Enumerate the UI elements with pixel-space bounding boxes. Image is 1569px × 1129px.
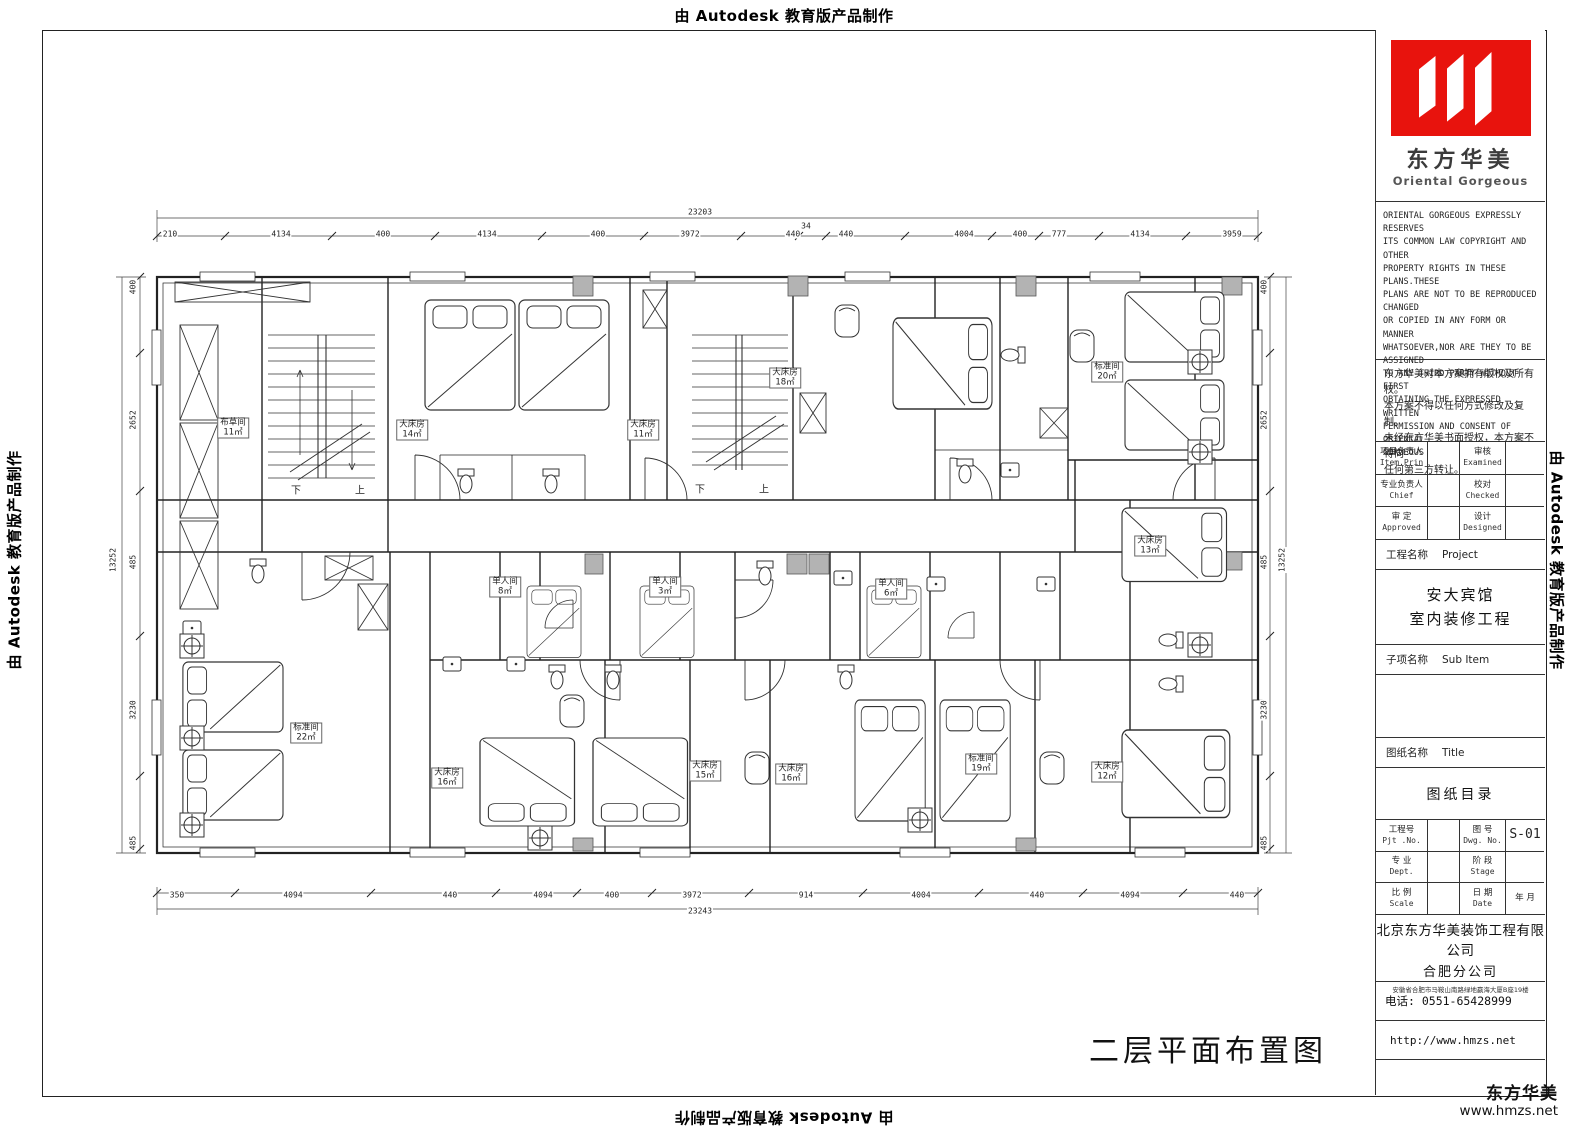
dimension-label: 777 (1051, 230, 1067, 239)
personnel-label: 专业负责人Chief (1376, 475, 1428, 508)
sheet-label-row: 图纸名称 Title (1375, 738, 1545, 768)
dimension-label: 4004 (910, 891, 931, 900)
beds (183, 292, 1230, 826)
dimension-label: 34 (800, 222, 812, 231)
dimension-label: 440 (1029, 891, 1045, 900)
dimension-label: 4134 (1129, 230, 1150, 239)
personnel-value (1506, 475, 1544, 508)
scale-label: 比 例Scale (1376, 883, 1428, 915)
logo-section: 东方华美 Oriental Gorgeous (1375, 30, 1545, 202)
dimension-label: 485 (1260, 554, 1269, 570)
dwg-no-label: 图 号Dwg. No. (1460, 820, 1506, 852)
logo-bar-icon (1475, 52, 1492, 126)
website-row: http://www.hmzs.net (1375, 1021, 1545, 1060)
stair-direction-label: 上 (355, 482, 365, 497)
dimension-label: 440 (785, 230, 801, 239)
project-name-line1: 安大宾馆 (1426, 583, 1494, 607)
dimension-label: 485 (1260, 835, 1269, 851)
info-table: 工程号Pjt .No. 图 号Dwg. No. S-01 专 业Dept. 阶 … (1375, 820, 1545, 915)
logo-company-en: Oriental Gorgeous (1376, 174, 1545, 188)
scale-value (1428, 883, 1460, 915)
dimension-label: 440 (442, 891, 458, 900)
personnel-value (1506, 442, 1544, 475)
dimension-label: 210 (162, 230, 178, 239)
dimension-lines (116, 210, 1292, 915)
dimension-label: 2652 (129, 409, 138, 430)
dept-label: 专 业Dept. (1376, 852, 1428, 884)
dimension-label: 440 (838, 230, 854, 239)
copyright-cn-line: 东方华美对本方案拥有版权及所有权。 (1384, 367, 1537, 399)
phone-row: 电话: 0551-65428999 (1375, 982, 1545, 1021)
dimension-label: 13252 (109, 547, 118, 573)
room-label: 单人间8㎡ (489, 577, 521, 598)
dimension-label: 3230 (129, 699, 138, 720)
dwg-no-value: S-01 (1506, 820, 1544, 852)
stair-direction-label: 下 (695, 481, 705, 496)
personnel-value (1428, 442, 1460, 475)
logo-company-cn: 东方华美 (1376, 142, 1545, 174)
room-label: 大床房13㎡ (1134, 536, 1166, 557)
company-name: 北京东方华美装饰工程有限公司 (1376, 919, 1545, 959)
title-block: 东方华美 Oriental Gorgeous ORIENTAL GORGEOUS… (1375, 30, 1545, 1095)
copyright-en-line: OR COPIED IN ANY FORM OR MANNER (1383, 315, 1538, 341)
company-branch: 合肥分公司 (1376, 961, 1545, 980)
dimension-label: 3959 (1221, 230, 1242, 239)
subitem-label-en: Sub Item (1442, 654, 1489, 666)
copyright-english: ORIENTAL GORGEOUS EXPRESSLY RESERVESITS … (1375, 202, 1545, 360)
project-label-row: 工程名称 Project (1375, 540, 1545, 570)
dimension-label: 23243 (687, 907, 713, 916)
dimension-label: 23203 (687, 208, 713, 217)
stage-label: 阶 段Stage (1460, 852, 1506, 884)
corner-brand-name: 东方华美 (1460, 1086, 1558, 1104)
dimension-label: 4094 (1119, 891, 1140, 900)
project-label-en: Project (1442, 549, 1478, 561)
logo-bar-icon (1447, 54, 1464, 122)
project-name: 安大宾馆 室内装修工程 (1375, 570, 1545, 645)
stair-direction-label: 上 (759, 481, 769, 496)
dimension-label: 400 (1012, 230, 1028, 239)
personnel-label: 设计Designed (1460, 507, 1506, 540)
room-label: 大床房18㎡ (769, 368, 801, 389)
room-label: 大床房11㎡ (627, 420, 659, 441)
dimension-label: 485 (129, 554, 138, 570)
dept-value (1428, 852, 1460, 884)
dimension-label: 4134 (270, 230, 291, 239)
dimension-label: 3230 (1260, 699, 1269, 720)
dimension-label: 400 (604, 891, 620, 900)
pjt-no-value (1428, 820, 1460, 852)
dimension-label: 400 (1260, 279, 1269, 295)
room-label: 大床房14㎡ (396, 420, 428, 441)
sheet-title: 图纸目录 (1375, 768, 1545, 820)
sheet-label: 图纸名称 (1386, 745, 1428, 760)
oriental-gorgeous-logo-mark (1391, 40, 1531, 136)
stair-direction-label: 下 (291, 482, 301, 497)
drawing-title: 二层平面布置图 (1089, 1026, 1327, 1070)
dimension-label: 400 (375, 230, 391, 239)
dimension-label: 350 (169, 891, 185, 900)
project-name-line2: 室内装修工程 (1409, 607, 1511, 631)
dimension-label: 3972 (681, 891, 702, 900)
date-label: 日 期Date (1460, 883, 1506, 915)
personnel-label: 校对Checked (1460, 475, 1506, 508)
floor-plan-drawing (0, 0, 1569, 1124)
dimension-label: 400 (590, 230, 606, 239)
personnel-value (1506, 507, 1544, 540)
dimension-label: 914 (798, 891, 814, 900)
company-section: 北京东方华美装饰工程有限公司 合肥分公司 安徽省合肥市马鞍山南路绿地赢海大厦B座… (1375, 915, 1545, 982)
sheet-label-en: Title (1442, 747, 1465, 759)
dimension-label: 4004 (953, 230, 974, 239)
room-label: 标准间19㎡ (965, 754, 997, 775)
copyright-en-line: PLANS ARE NOT TO BE REPRODUCED CHANGED (1383, 289, 1538, 315)
dimension-label: 400 (129, 279, 138, 295)
pjt-no-label: 工程号Pjt .No. (1376, 820, 1428, 852)
room-label: 布草间11㎡ (217, 418, 249, 439)
room-label: 大床房12㎡ (1091, 762, 1123, 783)
project-label: 工程名称 (1386, 547, 1428, 562)
copyright-en-line: ITS COMMON LAW COPYRIGHT AND OTHER (1383, 236, 1538, 262)
dimension-label: 485 (129, 835, 138, 851)
room-label: 标准间20㎡ (1091, 362, 1123, 383)
copyright-cn-line: 本方案不得以任何方式修改及复制。 (1384, 399, 1537, 431)
room-label: 大床房15㎡ (689, 761, 721, 782)
stage-value (1506, 852, 1544, 884)
room-label: 单人间3㎡ (649, 577, 681, 598)
personnel-label: 项目负责人Item.Prin (1376, 442, 1428, 475)
room-label: 单人间6㎡ (875, 579, 907, 600)
dimension-label: 13252 (1278, 547, 1287, 573)
personnel-value (1428, 507, 1460, 540)
personnel-label: 审核Examined (1460, 442, 1506, 475)
subitem-value-blank (1375, 675, 1545, 738)
personnel-table: 项目负责人Item.Prin审核Examined专业负责人Chief校对Chec… (1375, 442, 1545, 540)
subitem-label: 子项名称 (1386, 652, 1428, 667)
dimension-label: 4094 (532, 891, 553, 900)
dimension-label: 440 (1229, 891, 1245, 900)
personnel-value (1428, 475, 1460, 508)
room-label: 大床房16㎡ (431, 768, 463, 789)
drawing-sheet: { "edge_marks": { "text": "由 Autodesk 教育… (0, 0, 1569, 1124)
dimension-label: 3972 (679, 230, 700, 239)
copyright-chinese: 东方华美对本方案拥有版权及所有权。本方案不得以任何方式修改及复制。未经东方华美书… (1375, 360, 1545, 442)
room-label: 标准间22㎡ (290, 723, 322, 744)
copyright-en-line: ORIENTAL GORGEOUS EXPRESSLY RESERVES (1383, 210, 1538, 236)
copyright-en-line: PROPERTY RIGHTS IN THESE PLANS.THESE (1383, 263, 1538, 289)
dimension-label: 4134 (476, 230, 497, 239)
personnel-label: 审 定Approved (1376, 507, 1428, 540)
corner-brand: 东方华美 www.hmzs.net (1460, 1086, 1558, 1118)
corner-brand-url: www.hmzs.net (1460, 1104, 1558, 1118)
room-label: 大床房16㎡ (775, 764, 807, 785)
dimension-label: 2652 (1260, 409, 1269, 430)
subitem-label-row: 子项名称 Sub Item (1375, 645, 1545, 675)
dimension-label: 4094 (282, 891, 303, 900)
logo-bar-icon (1419, 56, 1436, 118)
date-value: 年 月 (1506, 883, 1544, 915)
